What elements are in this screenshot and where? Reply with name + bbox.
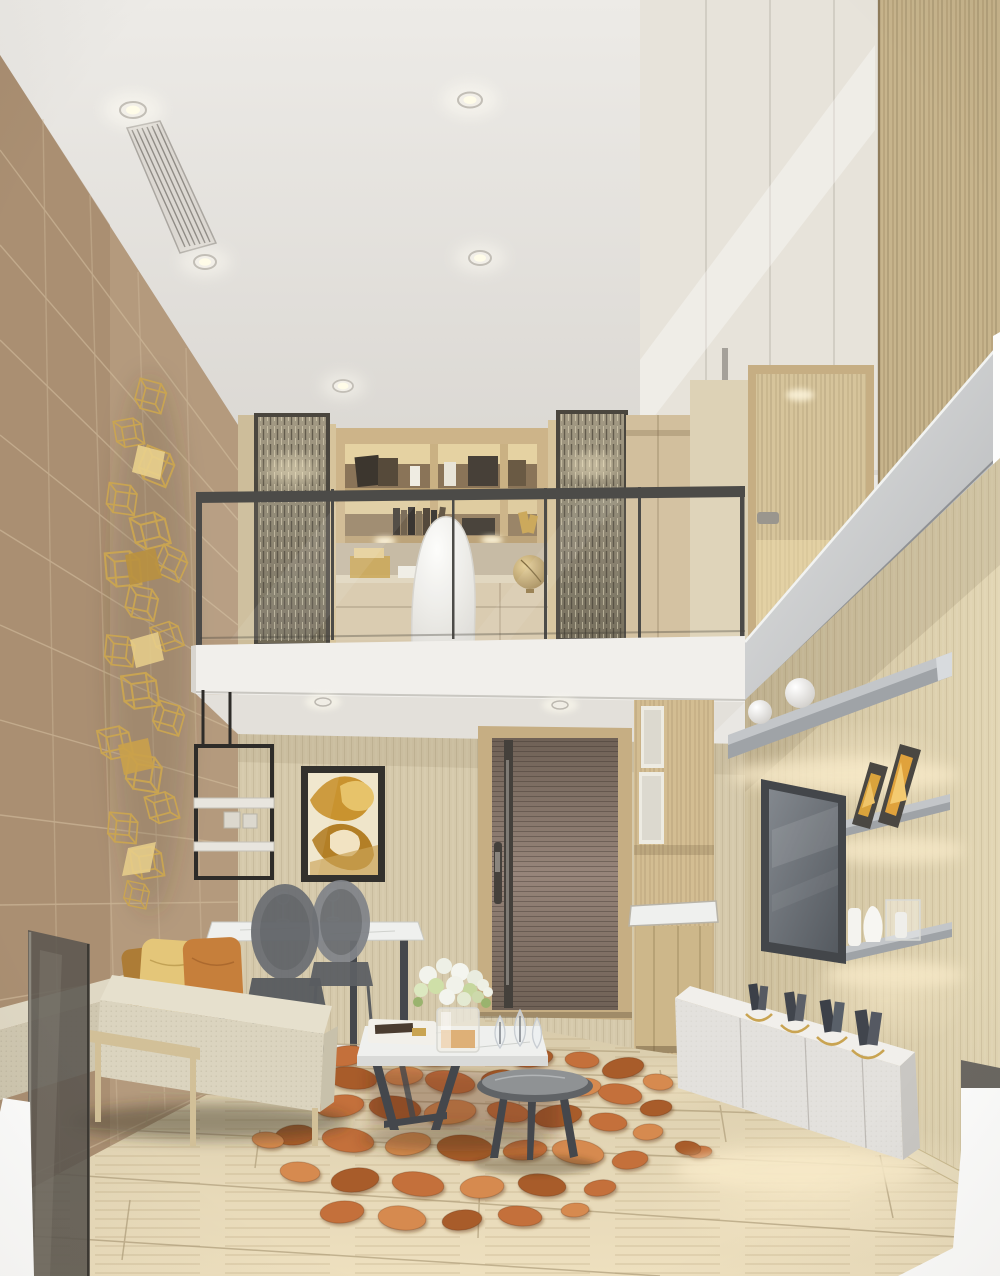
soffit-downlight — [305, 694, 341, 710]
closet-downlight — [786, 389, 814, 401]
edge-sliver — [993, 332, 1000, 464]
foreground-glass — [28, 930, 90, 1276]
shelf-board — [194, 842, 274, 851]
entry-door — [478, 726, 632, 1020]
soffit-downlight — [542, 697, 578, 713]
downlight — [179, 247, 231, 277]
flower-vase — [437, 1008, 479, 1052]
corner-cut-left — [0, 1098, 34, 1276]
tv — [761, 779, 846, 964]
glass-decor — [224, 812, 257, 828]
interior-render — [0, 0, 1000, 1276]
console-underglow — [675, 1150, 925, 1190]
downlight — [442, 83, 498, 117]
shelf-board — [194, 798, 274, 808]
downlight — [103, 92, 163, 128]
abstract-artwork — [301, 766, 385, 882]
door-handle — [494, 842, 502, 904]
counter-top — [629, 901, 718, 926]
door-lever — [757, 512, 779, 524]
downlight — [321, 373, 365, 399]
open-shelf-boxes — [639, 706, 664, 844]
mezzanine-fascia — [191, 636, 745, 702]
downlight — [454, 243, 506, 273]
loft-scene — [0, 0, 1000, 1276]
